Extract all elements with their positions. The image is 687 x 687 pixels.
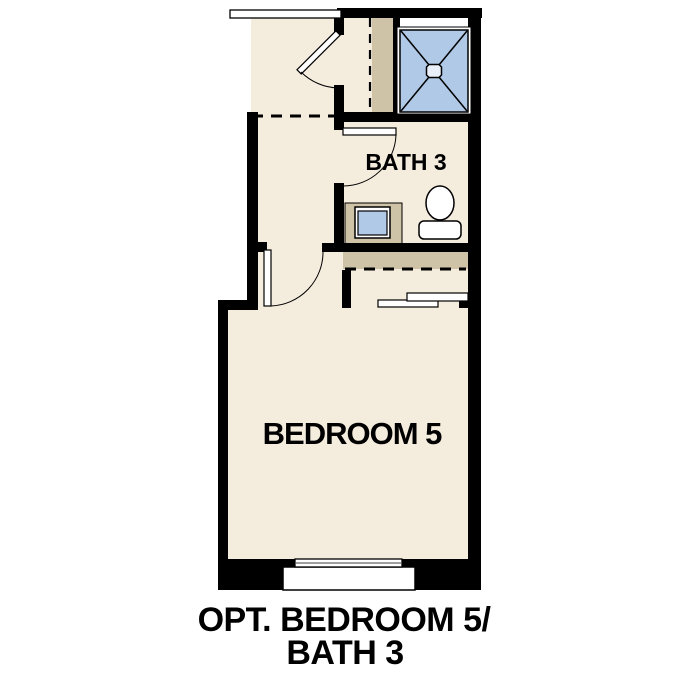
toilet-bowl <box>426 186 454 220</box>
bath-label: BATH 3 <box>365 149 446 175</box>
wall-top <box>337 8 482 18</box>
bedroom-label: BEDROOM 5 <box>263 416 443 451</box>
shower <box>397 27 471 114</box>
closet-shelf-band <box>343 252 468 269</box>
wall-step-connector <box>218 300 258 310</box>
shower-drain-icon <box>427 65 442 78</box>
sink-basin <box>358 211 387 235</box>
linen-shelving <box>372 18 393 114</box>
wall-bath-left <box>334 183 344 252</box>
wall-left-outer <box>218 300 228 590</box>
plan-caption-line2: BATH 3 <box>286 634 403 672</box>
wall-left-upper <box>247 112 258 310</box>
hall-floor <box>251 18 344 116</box>
wall-divider-right <box>322 243 468 252</box>
toilet-tank <box>419 221 461 239</box>
floor-plan-page: BATH 3 BEDROOM 5 OPT. BEDROOM 5/ BATH 3 <box>0 0 687 687</box>
wall-closet-stub <box>342 270 351 308</box>
vanity-sink <box>355 207 390 238</box>
bypass-door-panel-back <box>407 293 468 301</box>
vestibule-floor <box>257 114 344 248</box>
floor-plan-drawing: BATH 3 BEDROOM 5 OPT. BEDROOM 5/ BATH 3 <box>0 0 687 687</box>
cased-opening-top <box>230 10 341 18</box>
linen-closet-floor <box>344 18 372 114</box>
window-sill <box>283 567 415 590</box>
window <box>283 559 415 590</box>
bedroom-door-leaf <box>264 250 271 306</box>
wall-hall-stub-bottom <box>334 85 344 130</box>
bath-door-leaf <box>343 128 396 135</box>
